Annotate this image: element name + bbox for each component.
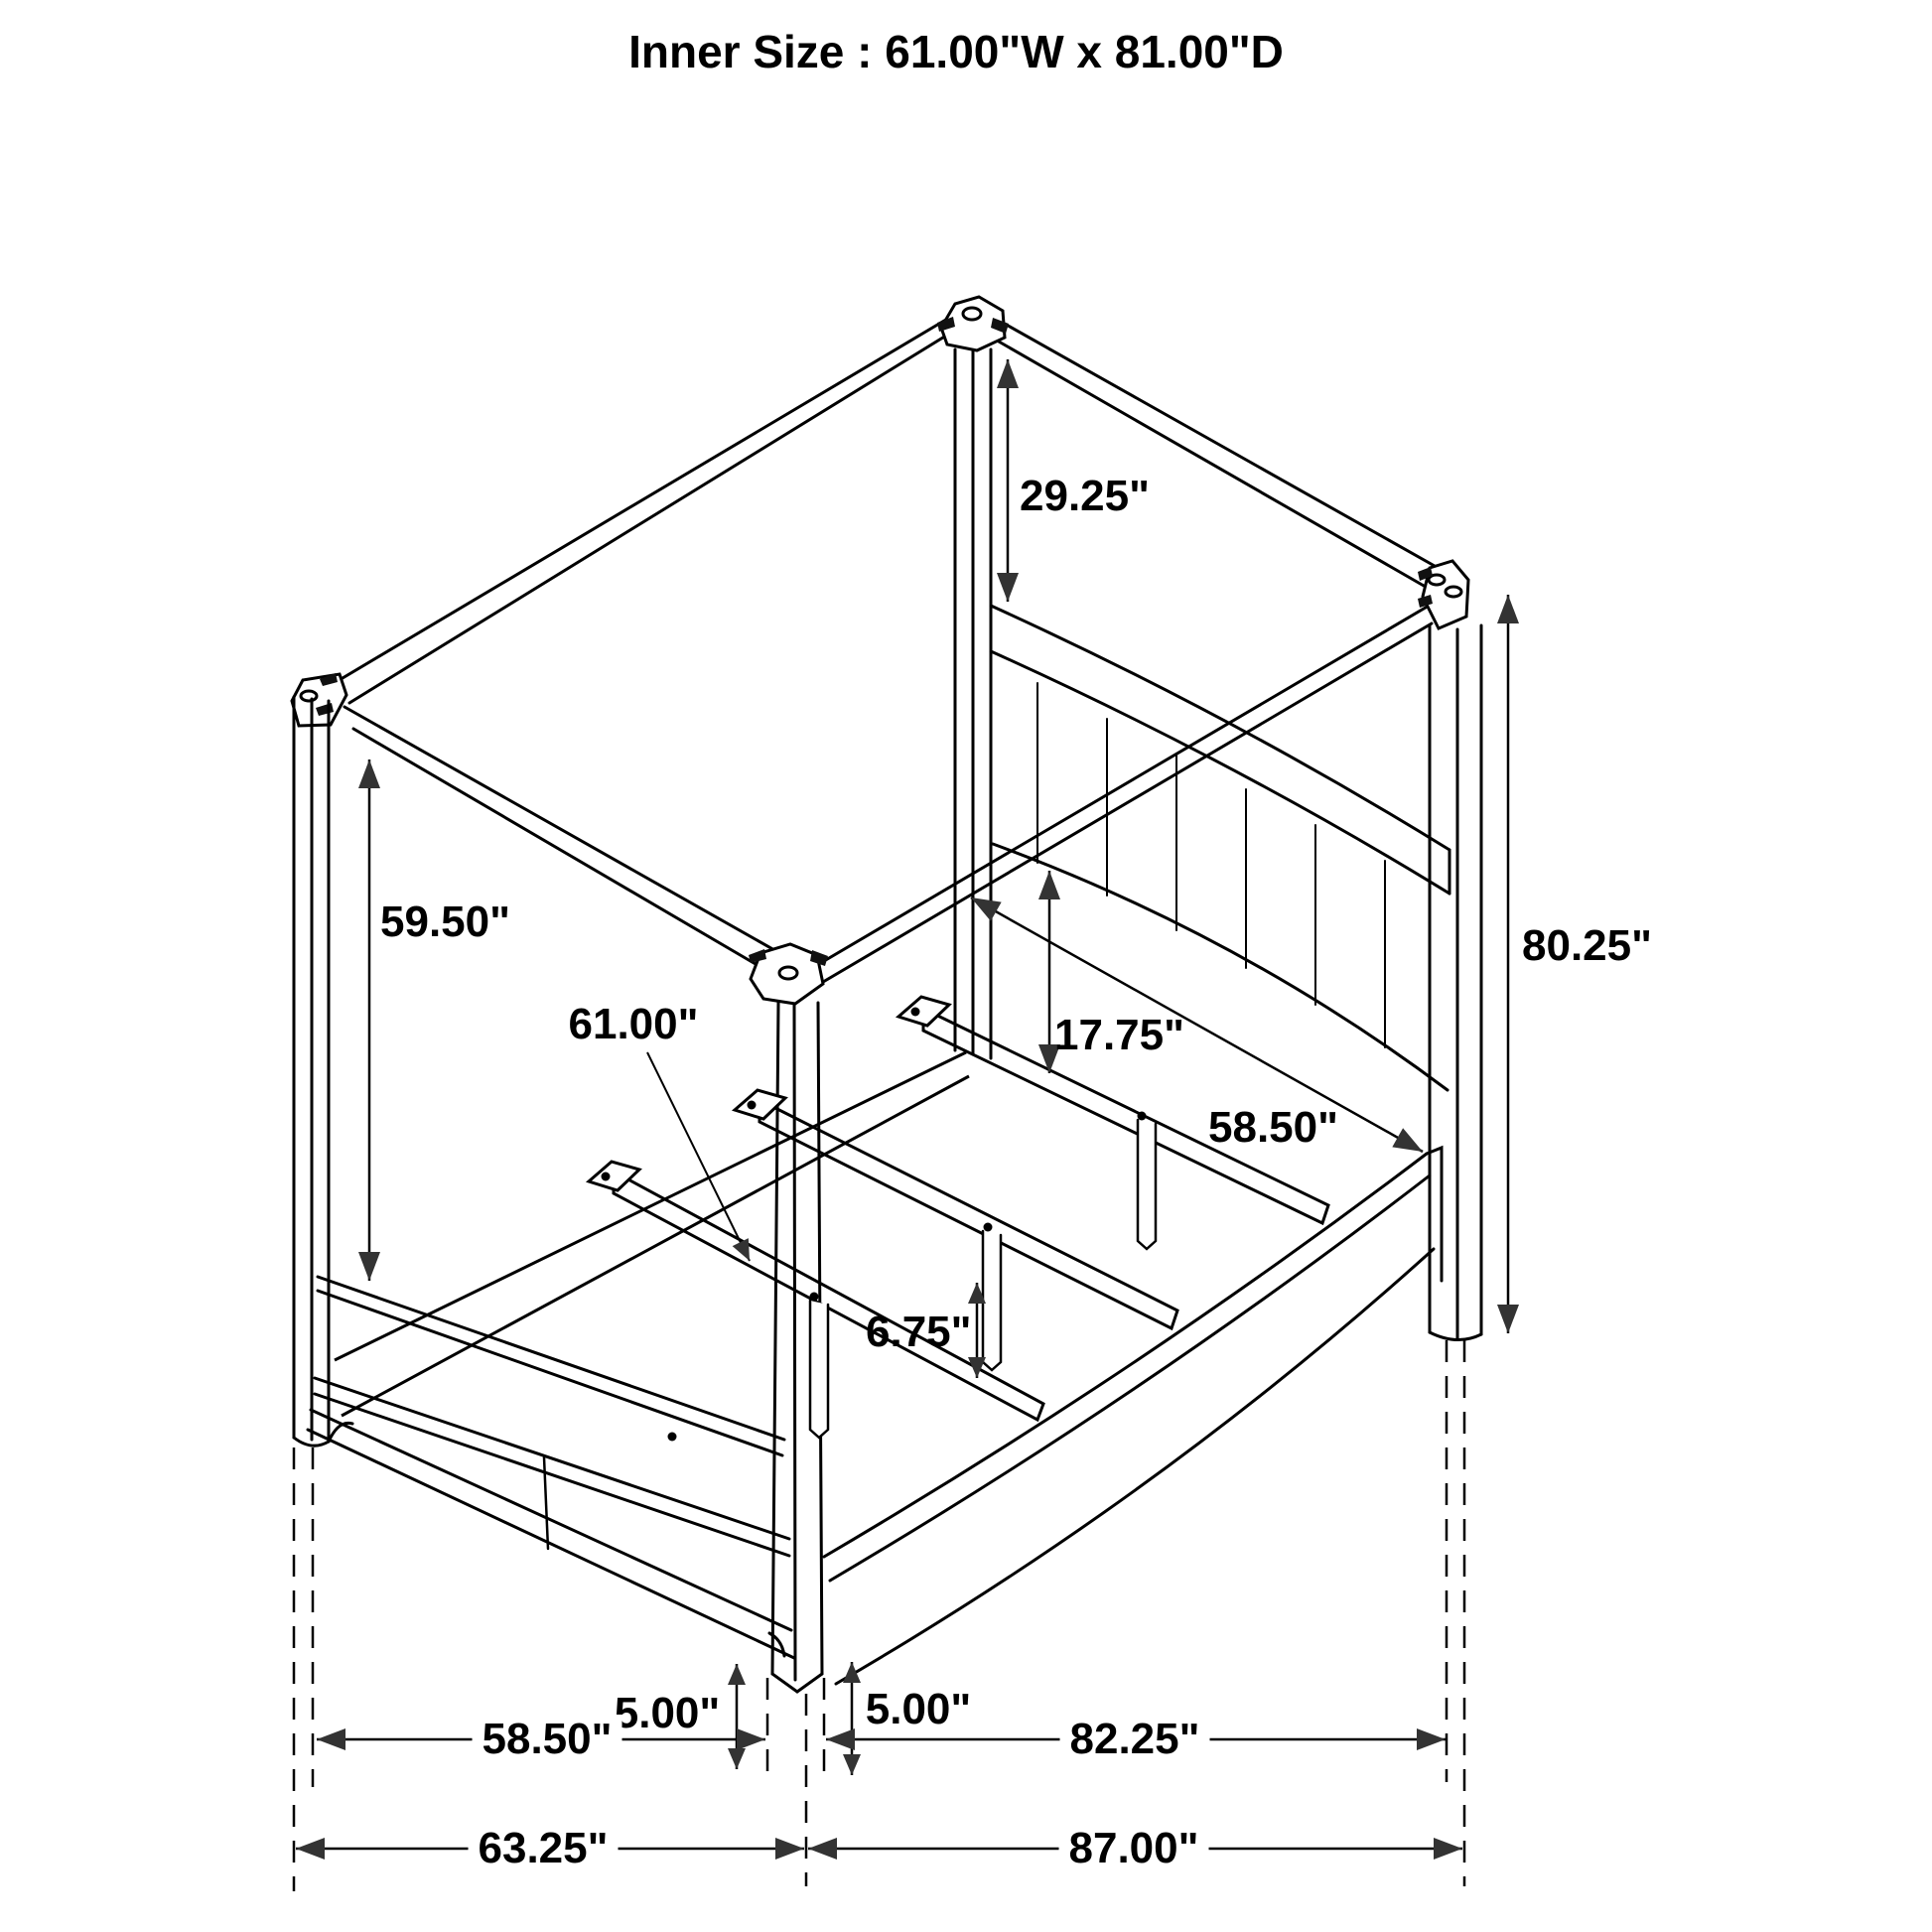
bed-posts	[294, 349, 1481, 1692]
dim-label-6-75: 6.75"	[866, 1311, 972, 1354]
footboard	[308, 1277, 794, 1658]
dim-label-87-00: 87.00"	[1059, 1827, 1209, 1870]
dim-label-59-50: 59.50"	[380, 900, 510, 944]
dim-label-58-50-mid: 58.50"	[1208, 1106, 1338, 1150]
dashed-extension-lines	[294, 1340, 1464, 1891]
leader-line-61	[647, 1052, 750, 1261]
slat-rails	[589, 997, 1328, 1442]
headboard-channel-tufting	[1037, 683, 1385, 1047]
corner-bolt-accents	[316, 317, 1433, 966]
dim-label-5-00-right: 5.00"	[866, 1688, 972, 1731]
right-side-rail	[824, 1148, 1442, 1684]
screw-hole-dots	[602, 1008, 1147, 1442]
dim-label-29-25: 29.25"	[1020, 475, 1150, 518]
dim-label-61-00: 61.00"	[569, 1003, 699, 1046]
left-side-rail	[335, 1052, 969, 1416]
dim-label-5-00-left: 5.00"	[615, 1692, 721, 1735]
dimension-diagram: Inner Size : 61.00"W x 81.00"D 29.25" 59…	[0, 0, 1932, 1932]
dim-label-17-75: 17.75"	[1054, 1014, 1184, 1057]
dim-label-58-50-bottom: 58.50"	[473, 1718, 622, 1761]
canopy-top-frame	[338, 305, 1442, 985]
dim-label-80-25: 80.25"	[1522, 924, 1652, 968]
dim-label-82-25: 82.25"	[1060, 1718, 1210, 1761]
page-title: Inner Size : 61.00"W x 81.00"D	[628, 25, 1284, 78]
dim-label-63-25: 63.25"	[469, 1827, 619, 1870]
